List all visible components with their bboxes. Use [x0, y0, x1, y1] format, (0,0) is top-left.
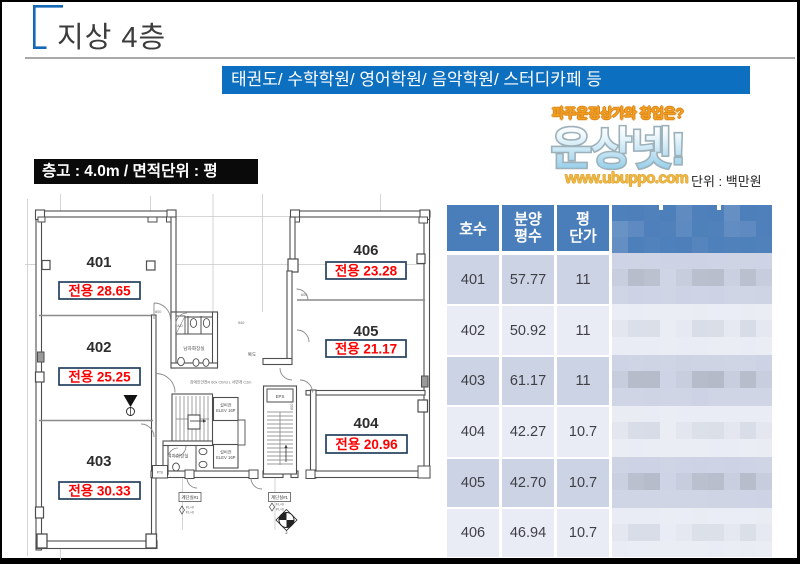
svg-text:FL+0: FL+0 — [186, 506, 194, 510]
svg-text:복도: 복도 — [248, 352, 256, 358]
svg-text:전용 28.65: 전용 28.65 — [68, 283, 131, 299]
svg-text:전용 30.33: 전용 30.33 — [68, 483, 131, 499]
svg-text:405: 405 — [353, 323, 378, 340]
svg-text:전용 21.17: 전용 21.17 — [335, 341, 397, 357]
svg-text:FL+0: FL+0 — [276, 508, 284, 512]
svg-text:EPS: EPS — [276, 394, 285, 399]
svg-text:404: 404 — [353, 415, 379, 432]
svg-text:800: 800 — [155, 310, 161, 314]
svg-text:406: 406 — [353, 242, 378, 259]
svg-text:940: 940 — [238, 321, 244, 325]
svg-text:2: 2 — [285, 530, 288, 535]
svg-text:ELEV 16P: ELEV 16P — [216, 455, 236, 460]
svg-text:ELEV 16P: ELEV 16P — [216, 408, 236, 413]
svg-text:FL+0: FL+0 — [186, 511, 194, 515]
svg-text:전용 23.28: 전용 23.28 — [335, 263, 398, 279]
svg-text:계단실#1: 계단실#1 — [181, 494, 199, 501]
svg-text:A.D: A.D — [177, 324, 183, 328]
svg-text:401: 401 — [86, 254, 111, 271]
svg-text:600: 600 — [301, 293, 307, 297]
svg-text:P.S: P.S — [157, 470, 163, 475]
svg-text:600: 600 — [290, 404, 294, 410]
svg-text:계단실#1: 계단실#1 — [271, 494, 289, 501]
svg-text:장애인안전R 60x Chrtd L 서면개 C2m: 장애인안전R 60x Chrtd L 서면개 C2m — [190, 380, 251, 385]
svg-text:403: 403 — [86, 453, 111, 470]
svg-text:402: 402 — [86, 339, 111, 356]
svg-text:전용 20.96: 전용 20.96 — [335, 436, 398, 452]
svg-text:FL+0: FL+0 — [276, 503, 284, 507]
svg-text:남자화장실: 남자화장실 — [183, 345, 204, 352]
svg-text:전용 25.25: 전용 25.25 — [68, 369, 131, 385]
